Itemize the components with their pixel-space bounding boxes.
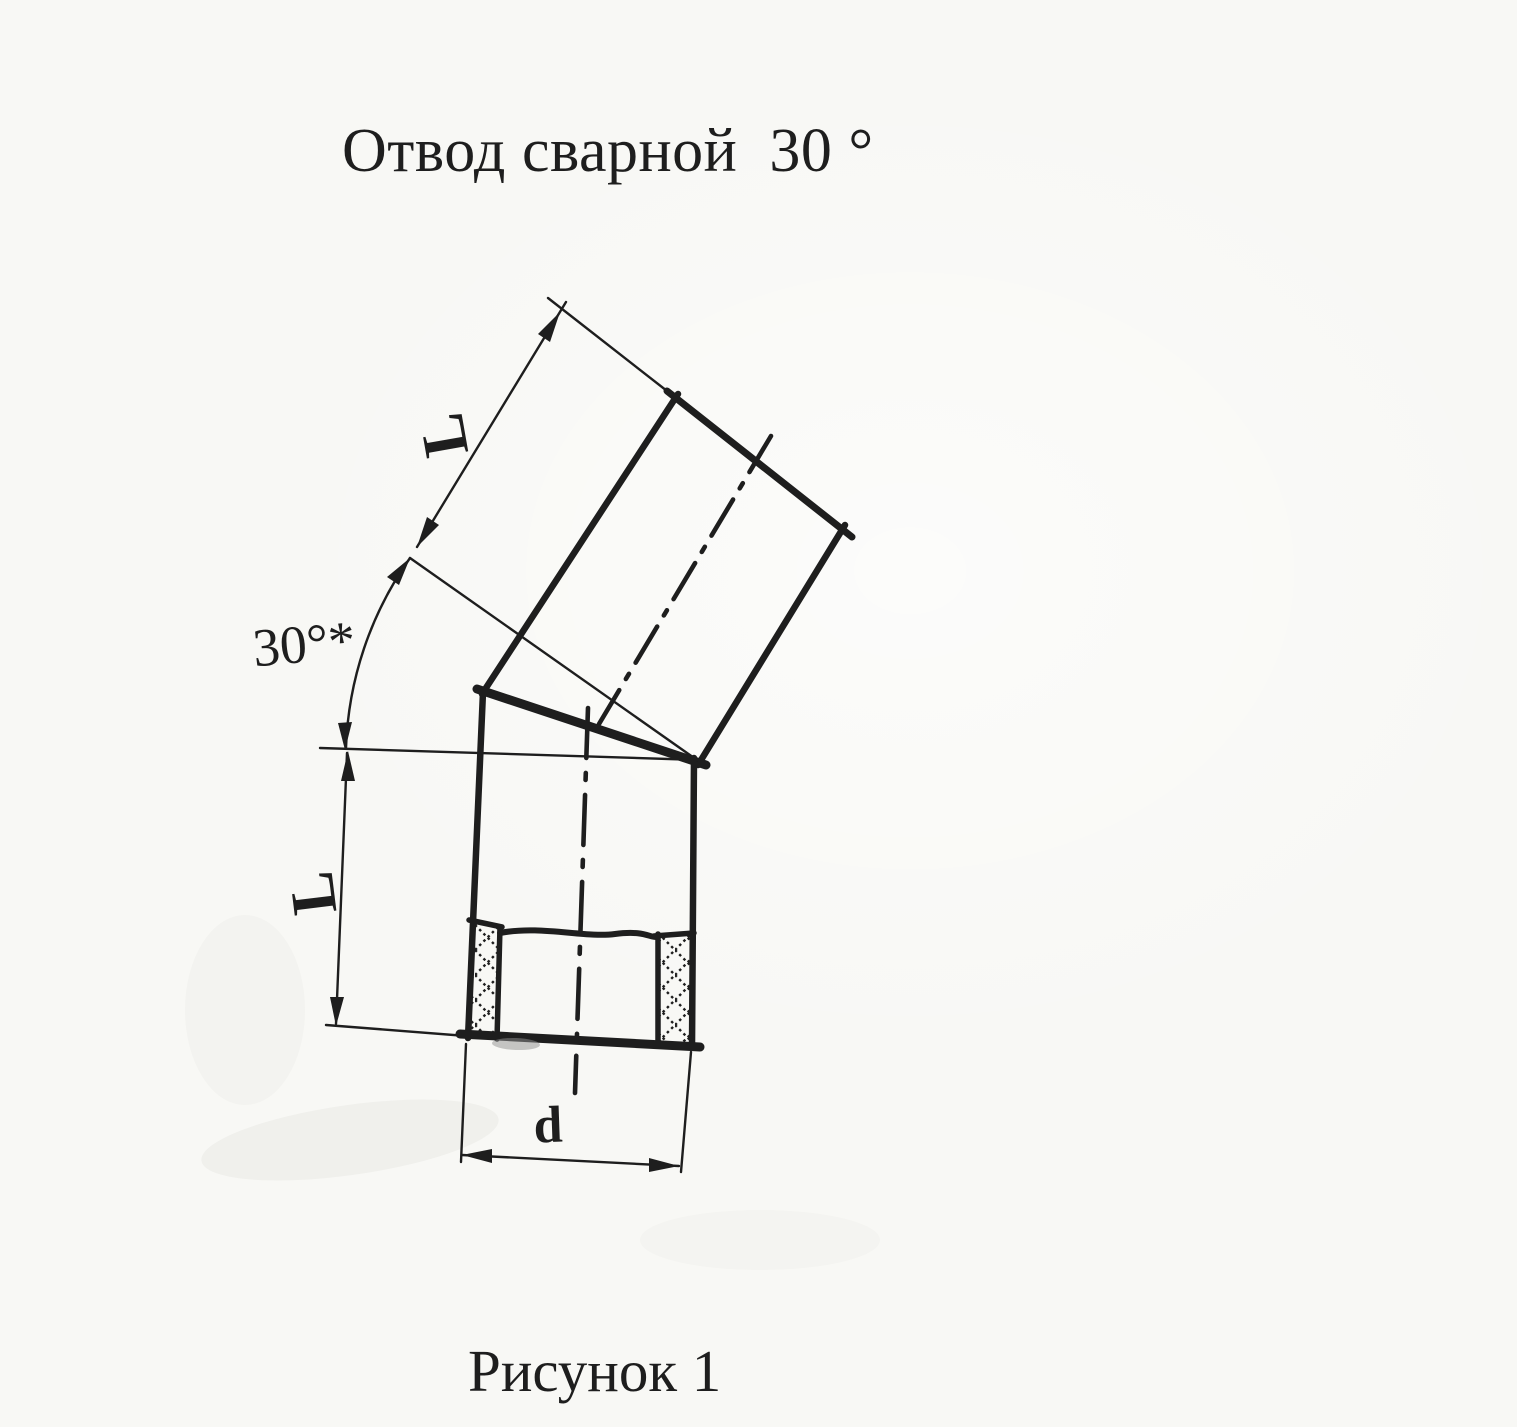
- scan-artifacts: [185, 915, 880, 1270]
- lower-centerline: [575, 708, 588, 1093]
- figure-caption: Рисунок 1: [468, 1342, 721, 1401]
- dim-label-lower-length: L: [279, 868, 348, 918]
- dim-angle-arc: [320, 558, 700, 760]
- elbow-drawing: [0, 0, 1517, 1427]
- dim-label-diameter: d: [533, 1100, 564, 1153]
- upper-pipe-segment: [477, 391, 852, 765]
- scanned-drawing-sheet: Отвод сварной 30 °: [0, 0, 1517, 1427]
- dim-label-angle: 30°*: [251, 613, 358, 676]
- dim-upper-length: [410, 298, 697, 760]
